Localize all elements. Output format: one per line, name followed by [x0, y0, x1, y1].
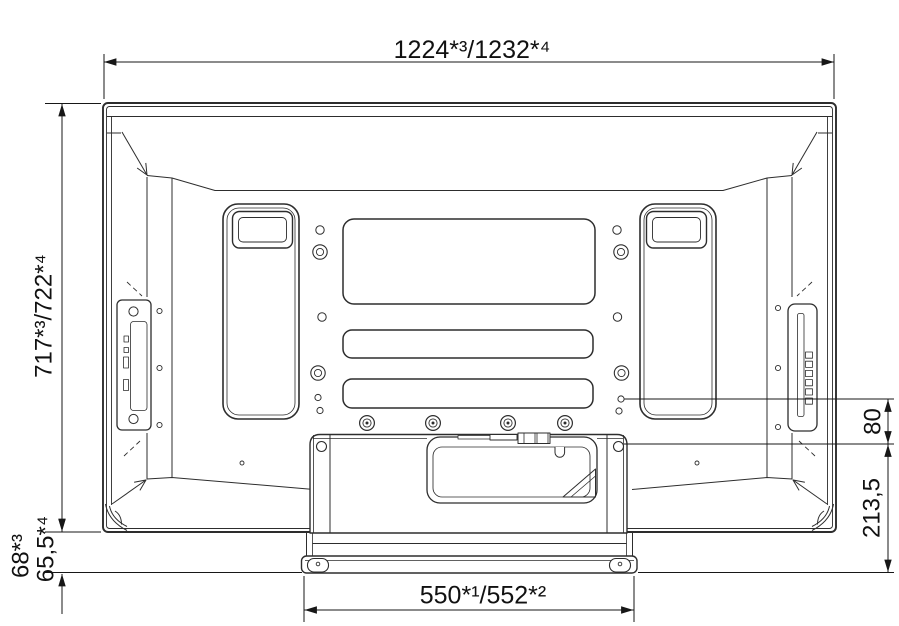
- bottom-edge-left: [147, 478, 314, 490]
- left-connector-panel: [117, 300, 162, 430]
- raised-panel-top-edge: [147, 176, 792, 191]
- control-bar: [798, 314, 805, 417]
- dim-stand-height-label-b: 65,5*⁴: [33, 516, 60, 582]
- outer-wall-lines: [147, 177, 792, 479]
- stand-body: [310, 435, 627, 534]
- ring-holes: [311, 245, 629, 380]
- small-hole: [157, 308, 162, 313]
- cover-plate-middle: [343, 330, 593, 358]
- dim-top-width-label: 1224*³/1232*⁴: [394, 36, 551, 64]
- paired-holes: [315, 394, 624, 414]
- stand-neck-inner: [313, 533, 627, 556]
- plate-screw-hole: [129, 307, 138, 316]
- screw: [558, 416, 573, 431]
- screw: [501, 416, 516, 431]
- cover-plate-lower: [343, 379, 593, 408]
- small-hole: [775, 365, 780, 370]
- dimension-diagram: 1224*³/1232*⁴ 717*³/722*⁴ 68*³ 65,5*⁴ 80…: [0, 0, 899, 626]
- dim-base-width-label: 550*¹/552*²: [420, 582, 546, 610]
- handle-grip-window: [233, 212, 293, 249]
- small-hole: [157, 365, 162, 370]
- handle-grip-window: [647, 212, 707, 249]
- hidden-lines: [124, 282, 815, 456]
- inner-wall-lines: [172, 178, 767, 478]
- plate-screw-hole: [129, 414, 138, 423]
- chamfer-bottom-left: [112, 480, 146, 504]
- base-foot: [308, 559, 329, 573]
- cable-notch: [555, 447, 565, 457]
- small-hole: [775, 424, 780, 429]
- small-hole: [157, 422, 162, 427]
- left-handle: [223, 204, 299, 419]
- dim-left-height-label: 717*³/722*⁴: [31, 254, 58, 378]
- corner-pad-bottom-left: [106, 504, 128, 531]
- screw: [360, 416, 375, 431]
- chamfer-top-right: [792, 132, 817, 175]
- dim-left-height: 717*³/722*⁴: [31, 104, 102, 533]
- cover-plate-large: [343, 219, 595, 304]
- single-holes: [316, 226, 622, 321]
- bottom-screw-row: [360, 416, 573, 431]
- dim-hole-offset-label: 80: [860, 408, 887, 435]
- base-foot: [610, 559, 631, 573]
- corner-pad-bottom-right: [812, 504, 834, 531]
- chamfer-top-left: [122, 132, 147, 175]
- chamfer-bottom-right: [793, 480, 827, 504]
- right-handle: [640, 204, 716, 419]
- dim-base-width: 550*¹/552*²: [304, 576, 634, 622]
- dim-hole-offset: 80: [624, 399, 894, 444]
- stand-neck-outer: [307, 533, 633, 556]
- tv-rear-drawing: 1224*³/1232*⁴ 717*³/722*⁴ 68*³ 65,5*⁴ 80…: [0, 0, 899, 626]
- small-hole: [775, 305, 780, 310]
- right-control-panel: [775, 304, 817, 431]
- dim-stand-drop-label: 213,5: [859, 478, 886, 538]
- base-plate: [302, 556, 638, 573]
- extension-lines: [624, 399, 894, 444]
- small-hole: [695, 461, 699, 465]
- screw: [426, 416, 441, 431]
- dim-stand-height-label-a: 68*³: [8, 534, 35, 578]
- control-buttons: [806, 352, 813, 404]
- dim-top-width: 1224*³/1232*⁴: [104, 36, 834, 99]
- vesa-mount-holes: [311, 226, 629, 431]
- terminal-covers: [343, 219, 595, 408]
- stand-bracket: [310, 433, 627, 533]
- stand-base: [302, 533, 638, 573]
- connector-sockets: [124, 336, 129, 391]
- dim-stand-drop: 213,5: [638, 445, 894, 573]
- dim-stand-height: 68*³ 65,5*⁴: [8, 507, 303, 614]
- small-hole: [240, 461, 244, 465]
- bottom-edge-right: [632, 478, 792, 490]
- connector-plate-recess: [131, 322, 148, 411]
